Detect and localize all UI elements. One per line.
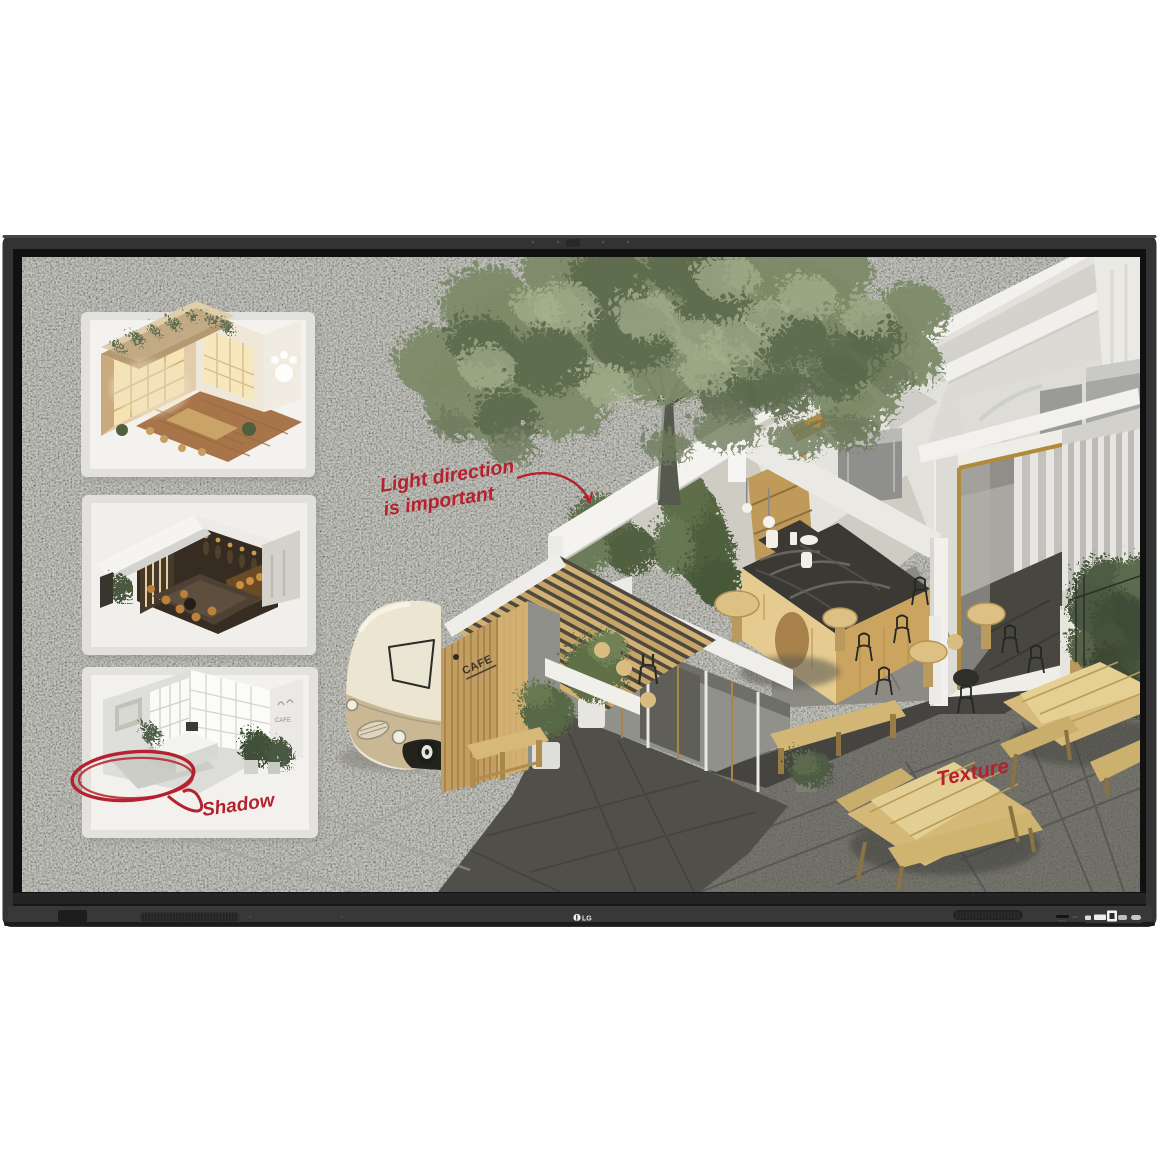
svg-text:CAFE: CAFE (275, 718, 291, 724)
svg-text:LG: LG (582, 915, 592, 922)
